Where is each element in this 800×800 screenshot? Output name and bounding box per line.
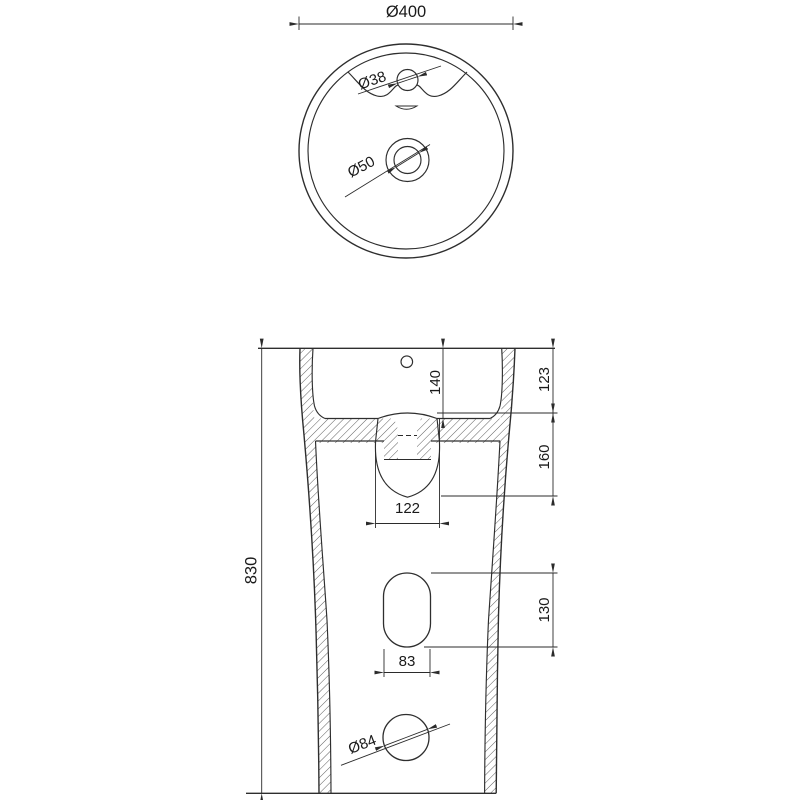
front-section-view: 830 140 123 160 122 (242, 348, 557, 793)
top-view: Ø400 Ø38 Ø50 (299, 3, 513, 258)
technical-drawing-canvas: Ø400 Ø38 Ø50 (0, 0, 800, 800)
dim-total-height: 830 (242, 348, 261, 793)
dim-faucet-hole-label: Ø38 (356, 68, 388, 93)
dim-faucet-hole: Ø38 (356, 66, 441, 94)
dim-rim-to-mount-plane-label: 123 (536, 367, 553, 392)
dim-outer-diameter-label: Ø400 (386, 3, 426, 21)
dim-service-opening-width-label: 83 (399, 653, 416, 670)
dim-service-opening-height-label: 130 (536, 597, 553, 622)
dim-trap-width-label: 122 (395, 500, 420, 517)
washbasin-dimension-drawing: Ø400 Ø38 Ø50 (0, 0, 800, 800)
dim-outer-diameter: Ø400 (299, 3, 513, 30)
basin-interior (312, 348, 502, 418)
dim-trap-zone-label: 160 (536, 444, 553, 469)
dim-basin-depth-label: 140 (427, 370, 444, 395)
overflow-slot (396, 106, 417, 109)
drain-funnel-right-section (417, 419, 431, 460)
drain-funnel-left-section (384, 419, 398, 460)
dim-drain-hole-label: Ø50 (345, 153, 378, 181)
dim-total-height-label: 830 (242, 557, 260, 585)
